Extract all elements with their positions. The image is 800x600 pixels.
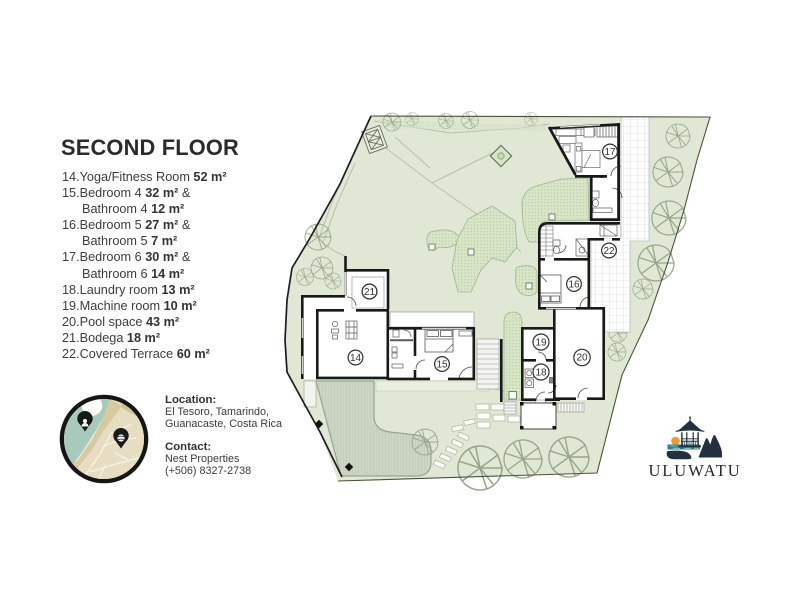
svg-text:18: 18: [535, 368, 547, 379]
svg-text:14: 14: [350, 353, 362, 364]
svg-text:15: 15: [436, 360, 448, 371]
svg-text:19: 19: [535, 338, 547, 349]
svg-text:22: 22: [603, 246, 615, 257]
svg-text:21: 21: [364, 287, 376, 298]
svg-text:20: 20: [576, 353, 588, 364]
svg-text:17: 17: [604, 147, 616, 158]
svg-text:16: 16: [568, 280, 580, 291]
